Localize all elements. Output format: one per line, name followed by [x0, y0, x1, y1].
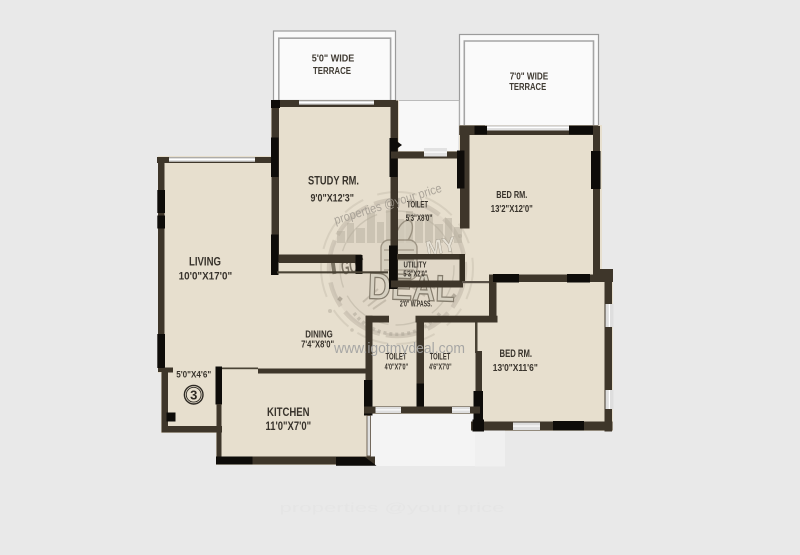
svg-text:DINING: DINING: [305, 328, 333, 340]
svg-text:4'0"X7'0": 4'0"X7'0": [385, 361, 409, 371]
svg-text:properties @your price: properties @your price: [280, 500, 505, 515]
svg-text:STUDY RM.: STUDY RM.: [308, 176, 359, 188]
svg-text:13'0"X11'6": 13'0"X11'6": [493, 362, 538, 374]
svg-text:7'4"X8'0": 7'4"X8'0": [301, 340, 334, 351]
svg-text:BED RM.: BED RM.: [496, 189, 527, 201]
svg-text:LIVING: LIVING: [189, 257, 221, 269]
svg-text:5'3"X2'0": 5'3"X2'0": [403, 269, 427, 279]
svg-text:www.igotmydeal.com: www.igotmydeal.com: [333, 340, 465, 357]
svg-text:KITCHEN: KITCHEN: [267, 405, 310, 419]
svg-text:5'3"X8'0": 5'3"X8'0": [406, 213, 433, 223]
svg-text:2'0" W.PASS.: 2'0" W.PASS.: [400, 299, 432, 308]
svg-text:10'0"X17'0": 10'0"X17'0": [179, 271, 233, 283]
svg-text:3: 3: [190, 388, 197, 403]
svg-text:TERRACE: TERRACE: [509, 81, 546, 93]
svg-text:5'0" WIDE: 5'0" WIDE: [312, 52, 355, 64]
svg-text:TERRACE: TERRACE: [313, 65, 351, 77]
svg-text:13'2"X12'0": 13'2"X12'0": [491, 203, 533, 215]
svg-text:BED RM.: BED RM.: [500, 348, 533, 360]
svg-text:4'6"X7'0": 4'6"X7'0": [429, 361, 452, 371]
svg-text:9'0"X12'3": 9'0"X12'3": [310, 193, 354, 205]
svg-text:5'0"X4'6": 5'0"X4'6": [176, 370, 211, 381]
svg-text:11'0"X7'0": 11'0"X7'0": [266, 421, 312, 433]
